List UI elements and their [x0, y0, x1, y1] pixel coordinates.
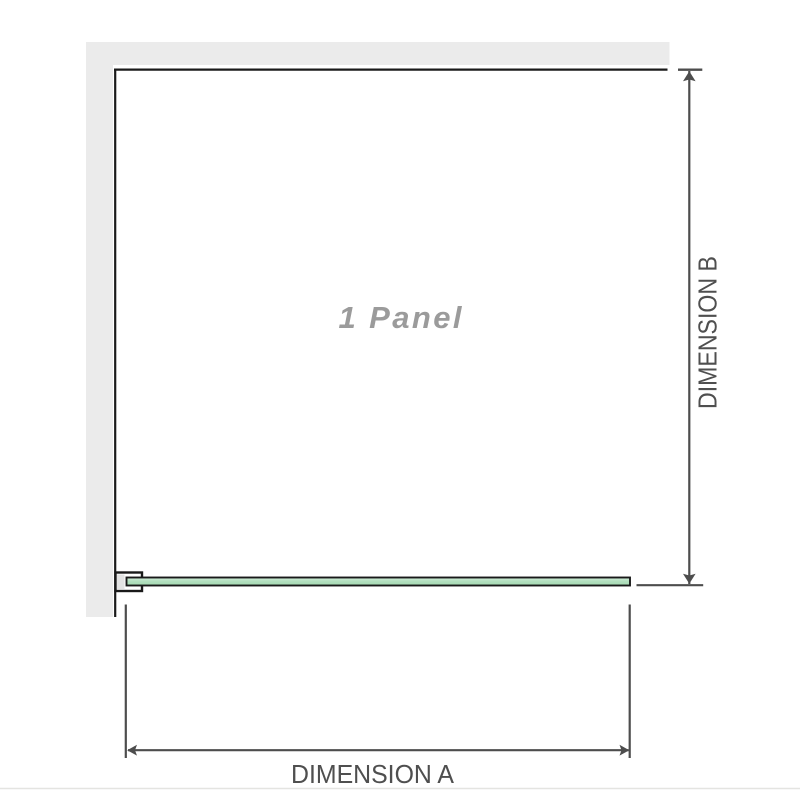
svg-text:1 Panel: 1 Panel	[339, 300, 463, 335]
svg-text:DIMENSION B: DIMENSION B	[695, 256, 723, 409]
svg-text:DIMENSION A: DIMENSION A	[291, 761, 454, 789]
